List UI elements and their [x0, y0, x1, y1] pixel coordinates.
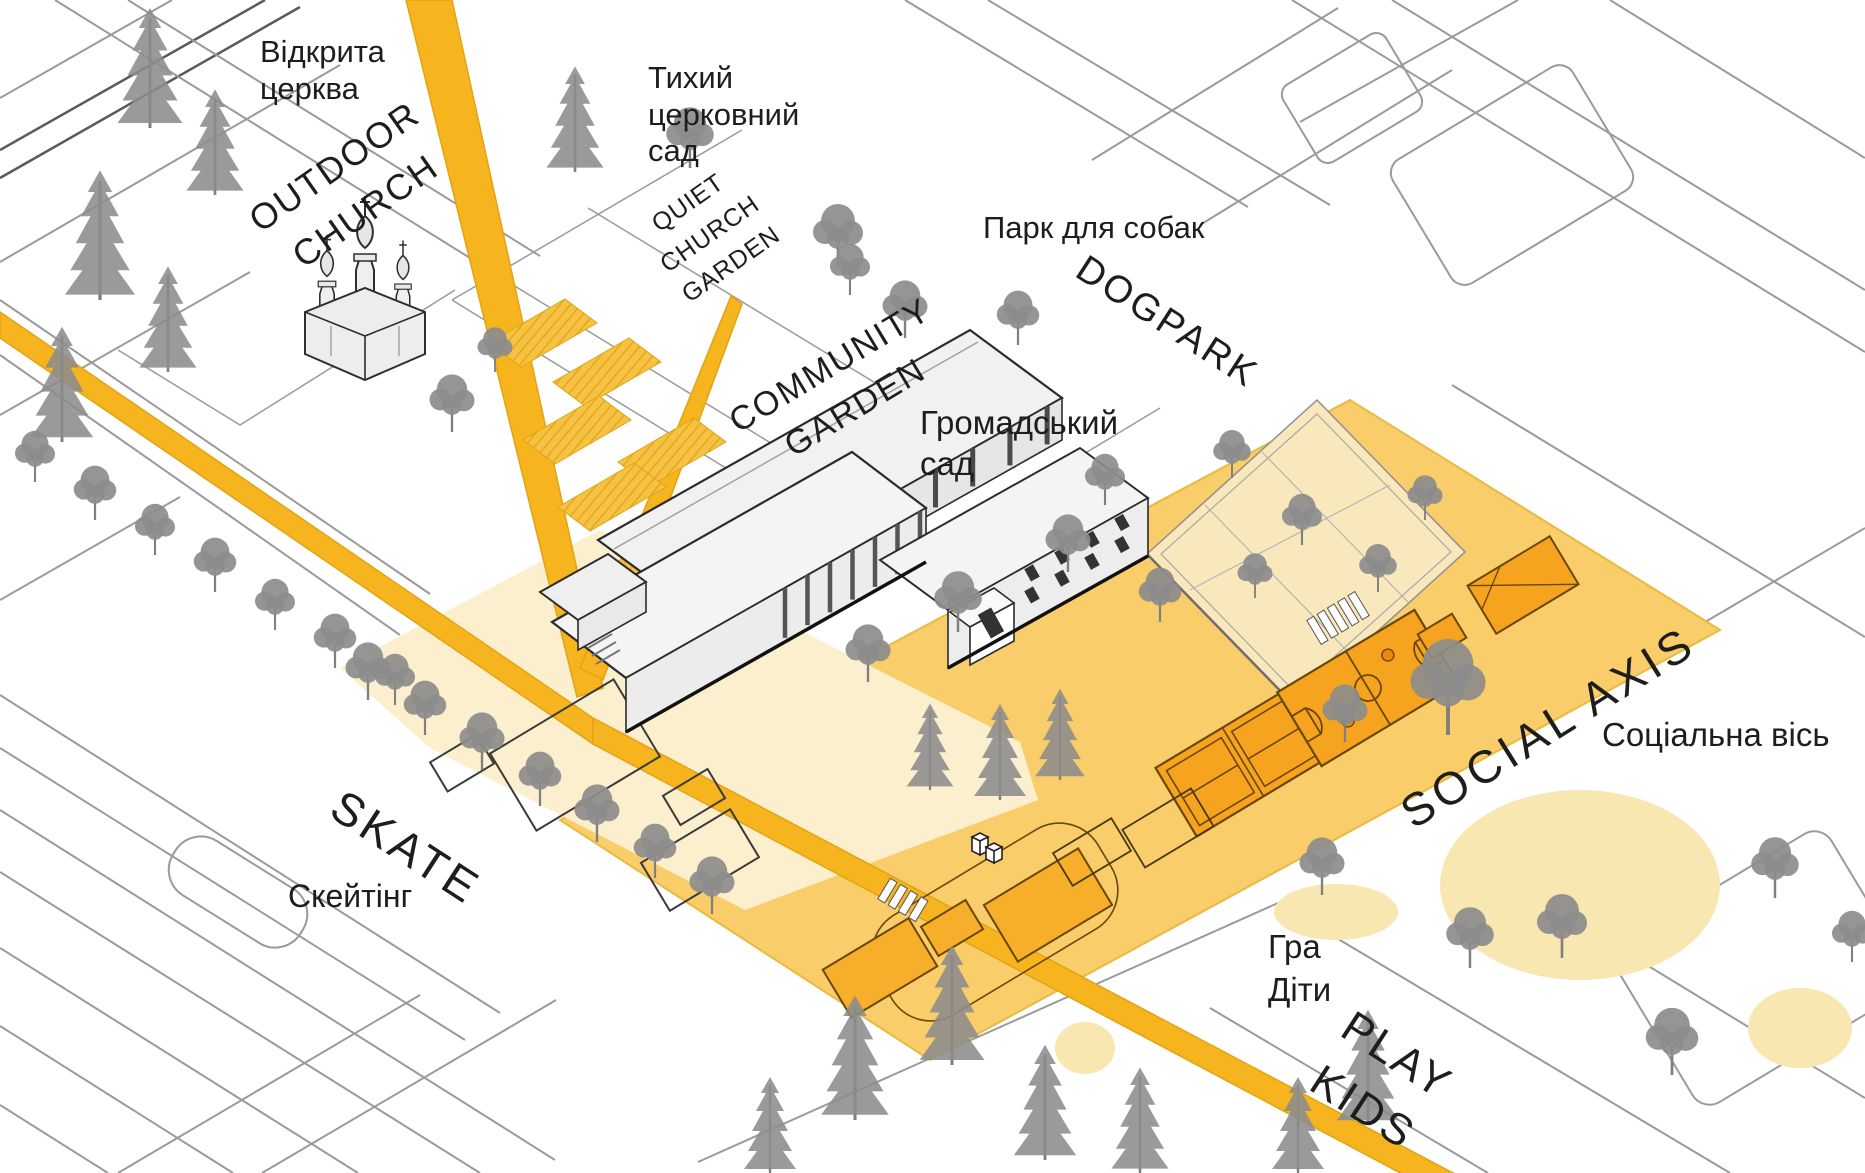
street-line [0, 1105, 108, 1173]
street-line [0, 1026, 233, 1173]
deciduous-tree-icon [830, 244, 870, 295]
label-quiet-church-garden-uk: Тихий церковний сад [648, 60, 799, 170]
street-line [1610, 0, 1865, 158]
street-line [118, 995, 420, 1173]
label-play-kids-uk: Гра Діти [1268, 926, 1331, 1012]
deciduous-tree-icon [135, 504, 175, 555]
deciduous-tree-icon [997, 291, 1040, 345]
deciduous-tree-icon [1751, 837, 1799, 898]
street-line [1392, 0, 1865, 290]
deciduous-tree-icon [1832, 911, 1865, 962]
deciduous-tree-icon [430, 374, 475, 432]
label-social-axis-uk: Соціальна вісь [1602, 716, 1830, 755]
label-community-garden-uk: Громадський сад [920, 402, 1118, 485]
conifer-tree-icon [139, 266, 196, 372]
deciduous-tree-icon [74, 466, 117, 520]
deciduous-tree-icon [1646, 1008, 1699, 1075]
conifer-tree-icon [744, 1077, 796, 1173]
street-line [1300, 0, 1518, 122]
street-line [1292, 0, 1865, 352]
label-outdoor-church-uk: Відкрита церква [260, 34, 385, 107]
conifer-tree-icon [1111, 1067, 1168, 1173]
deciduous-tree-icon [194, 538, 237, 592]
conifer-tree-icon [546, 66, 603, 172]
street-line [0, 872, 480, 1173]
deciduous-tree-icon [15, 431, 55, 482]
site-plan: Відкрита церква OUTDOOR CHURCH Тихий цер… [0, 0, 1865, 1173]
street-line [905, 0, 1248, 207]
label-dogpark-uk: Парк для собак [983, 210, 1204, 247]
street-line [262, 1000, 556, 1173]
street-line [988, 0, 1330, 205]
conifer-tree-icon [186, 89, 243, 195]
deciduous-tree-icon [255, 579, 295, 630]
label-skate-uk: Скейтінг [288, 878, 412, 916]
